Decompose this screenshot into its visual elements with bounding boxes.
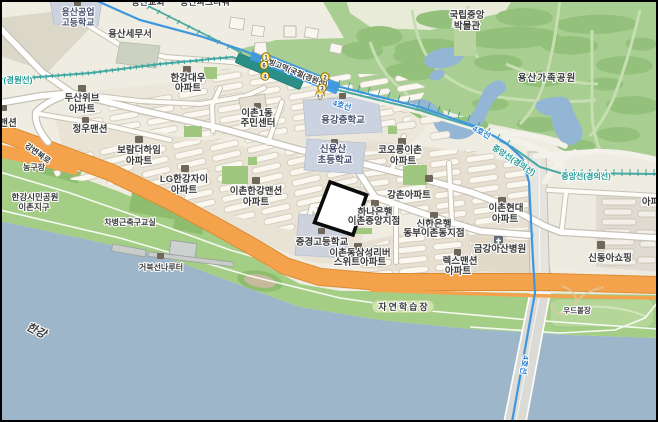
svg-text:중경고등학교: 중경고등학교 — [296, 236, 349, 248]
svg-text:이촌현대: 이촌현대 — [489, 202, 524, 214]
svg-text:아파트: 아파트 — [243, 196, 269, 208]
svg-text:아파트: 아파트 — [69, 103, 95, 115]
svg-text:LG한강자이: LG한강자이 — [160, 173, 208, 185]
svg-text:아파트: 아파트 — [171, 184, 197, 196]
svg-text:초등학교: 초등학교 — [318, 154, 353, 166]
svg-text:산(경원선): 산(경원선) — [0, 75, 33, 85]
svg-text:아파트: 아파트 — [126, 155, 152, 167]
svg-text:맨션: 맨션 — [0, 117, 17, 129]
svg-text:아파트: 아파트 — [445, 265, 471, 277]
svg-text:3-1: 3-1 — [317, 94, 324, 99]
svg-text:아파트: 아파트 — [175, 82, 201, 94]
svg-text:용산공업: 용산공업 — [61, 6, 94, 17]
svg-text:이촌중앙지점: 이촌중앙지점 — [348, 215, 400, 227]
svg-text:한강시민공원: 한강시민공원 — [12, 192, 59, 202]
svg-text:거북선나루터: 거북선나루터 — [139, 262, 183, 272]
svg-text:국립중앙: 국립중앙 — [450, 9, 485, 21]
svg-text:용강중학교: 용강중학교 — [321, 114, 365, 126]
svg-text:자연학습장: 자연학습장 — [378, 301, 429, 312]
svg-text:중앙선(경의선): 중앙선(경의선) — [561, 171, 611, 181]
svg-text:금강아산병원: 금강아산병원 — [474, 243, 526, 255]
svg-text:박물관: 박물관 — [454, 20, 480, 32]
svg-text:용산가족공원: 용산가족공원 — [518, 72, 576, 84]
svg-text:신용산: 신용산 — [320, 143, 346, 155]
svg-text:이촌한강맨션: 이촌한강맨션 — [230, 185, 282, 197]
svg-text:차병근축구교실: 차병근축구교실 — [104, 217, 156, 227]
svg-text:용산세무서: 용산세무서 — [108, 28, 152, 40]
svg-text:스위트아파트: 스위트아파트 — [334, 256, 387, 268]
svg-text:정우맨션: 정우맨션 — [73, 123, 108, 135]
svg-text:이촌지구: 이촌지구 — [18, 202, 49, 212]
svg-text:우드볼장: 우드볼장 — [563, 305, 591, 315]
svg-text:아파트: 아파트 — [390, 155, 416, 167]
svg-text:고등학교: 고등학교 — [61, 17, 94, 28]
svg-text:두산위브: 두산위브 — [65, 92, 100, 104]
svg-text:아파트: 아파트 — [492, 213, 518, 225]
svg-text:신동아쇼핑: 신동아쇼핑 — [588, 252, 632, 264]
svg-text:주민센터: 주민센터 — [241, 117, 276, 129]
svg-text:보람더하임: 보람더하임 — [117, 144, 161, 156]
svg-text:아파트: 아파트 — [642, 196, 658, 208]
svg-text:코오롱이촌: 코오롱이촌 — [378, 144, 422, 156]
svg-text:강촌아파트: 강촌아파트 — [387, 189, 431, 201]
svg-text:농구장: 농구장 — [23, 162, 46, 172]
svg-text:동부이촌동지점: 동부이촌동지점 — [403, 227, 464, 239]
